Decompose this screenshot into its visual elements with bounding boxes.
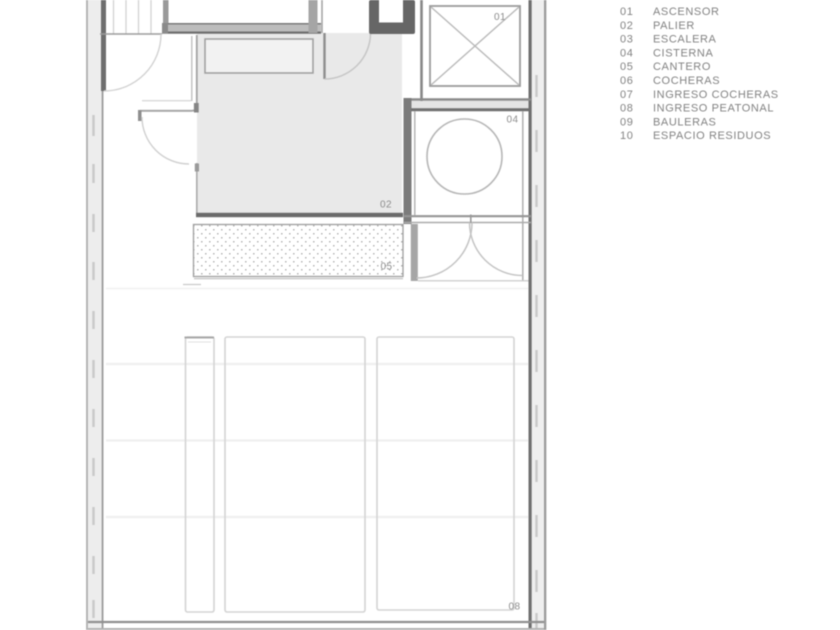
svg-text:09: 09 [620,116,633,128]
svg-text:PALIER: PALIER [653,20,695,32]
svg-text:CANTERO: CANTERO [653,61,711,73]
svg-text:02: 02 [380,200,392,211]
svg-text:INGRESO COCHERAS: INGRESO COCHERAS [653,89,779,101]
svg-text:04: 04 [506,115,518,126]
svg-text:ESPACIO RESIDUOS: ESPACIO RESIDUOS [653,130,771,142]
svg-text:CISTERNA: CISTERNA [653,47,713,59]
svg-text:08: 08 [620,103,633,115]
svg-text:10: 10 [620,130,633,142]
svg-text:06: 06 [620,75,633,87]
svg-text:05: 05 [380,262,392,273]
svg-text:ASCENSOR: ASCENSOR [653,6,720,18]
svg-text:INGRESO PEATONAL: INGRESO PEATONAL [653,103,774,115]
svg-text:05: 05 [620,61,633,73]
svg-text:01: 01 [494,12,506,23]
svg-text:BAULERAS: BAULERAS [653,116,717,128]
svg-text:07: 07 [620,89,633,101]
svg-text:02: 02 [620,20,633,32]
svg-text:04: 04 [620,47,633,59]
svg-text:01: 01 [620,6,633,18]
svg-text:03: 03 [620,34,633,46]
svg-text:08: 08 [508,602,520,613]
svg-text:ESCALERA: ESCALERA [653,34,717,46]
svg-text:COCHERAS: COCHERAS [653,75,720,87]
